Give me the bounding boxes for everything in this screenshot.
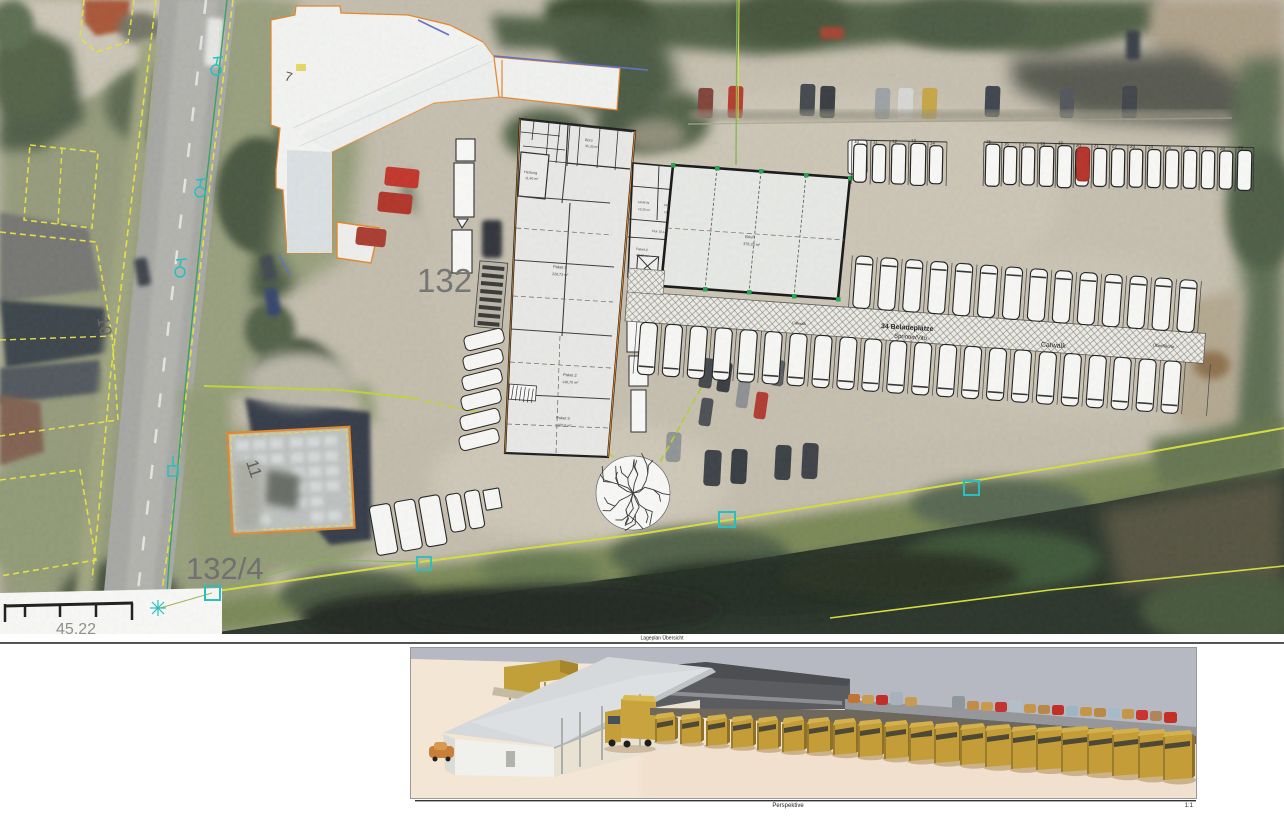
svg-text:Lageplan Übersicht: Lageplan Übersicht (640, 635, 684, 642)
svg-text:Perspektive: Perspektive (772, 803, 804, 809)
svg-text:1:1: 1:1 (1185, 803, 1194, 809)
